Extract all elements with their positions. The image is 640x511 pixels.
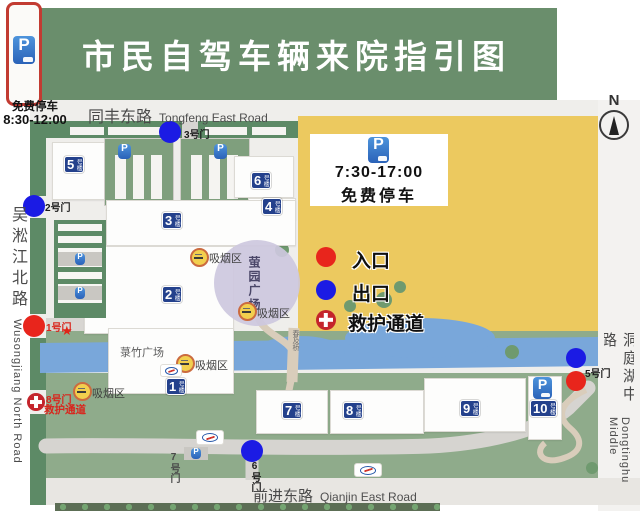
left-road-cn: 吴淞江北路 <box>5 206 29 311</box>
top-road-cn: 同丰东路 <box>88 103 152 127</box>
legend-exit-label: 出口 <box>352 279 390 306</box>
parking-icon: P <box>368 137 389 163</box>
smoking-label: 吸烟区 <box>92 385 125 401</box>
hospital-logo-icon <box>160 364 182 377</box>
gate7-label: 7号门 <box>166 452 181 483</box>
gate5-exit-dot <box>566 348 586 368</box>
parking-icon: P <box>214 144 227 159</box>
car-glyph <box>23 57 33 62</box>
smoking-icon <box>190 248 209 267</box>
gate2-label: 2号门 <box>45 199 71 214</box>
title-banner: 市民自驾车辆来院指引图 <box>36 8 557 100</box>
building-label-6: 6号楼 <box>251 172 271 189</box>
surface-parking-rows <box>54 220 106 318</box>
car-glyph <box>378 156 387 161</box>
building-label-8: 8号楼 <box>343 402 363 419</box>
building-label-2: 2号楼 <box>162 286 182 303</box>
smoking-label: 吸烟区 <box>195 357 228 373</box>
smoking-label: 吸烟区 <box>209 250 242 266</box>
parking-hours: 7:30-17:00 <box>310 164 448 182</box>
gate5-entrance-dot <box>566 371 586 391</box>
legend-entrance-label: 入口 <box>352 246 390 273</box>
gate8-sub-label: 救护通道 <box>44 402 86 417</box>
north-compass-icon: N <box>598 92 630 140</box>
parking-row-p: P <box>58 286 102 300</box>
legend-ambulance-label: 救护通道 <box>348 309 424 336</box>
top-road-en: Tongfeng East Road <box>159 111 268 125</box>
bottom-road-en: Qianjin East Road <box>320 490 417 504</box>
legend-exit-dot <box>316 280 336 300</box>
bamboo-plaza-label: 菉竹广场 <box>120 344 164 360</box>
parking-row-p: P <box>58 252 102 266</box>
parking-free-label: 免费停车 <box>310 182 448 206</box>
hospital-guide-map: 市民自驾车辆来院指引图 P 免费停车 8:30-12:00 P P P <box>0 0 640 511</box>
car-glyph <box>541 393 550 397</box>
star-icon: ★ <box>61 324 73 337</box>
hospital-logo-icon <box>196 430 224 445</box>
ward-block-west <box>104 138 174 206</box>
gate3-label: 3号门 <box>184 126 210 141</box>
smoking-icon <box>73 382 92 401</box>
right-road-cn: 洞庭湖中路 <box>604 332 634 409</box>
building-label-3: 3号楼 <box>162 212 182 229</box>
parking-icon: P <box>13 36 35 64</box>
left-road-en: Wusongjiang North Road <box>11 319 23 464</box>
building-label-5: 5号楼 <box>64 156 84 173</box>
top-road-label: 同丰东路 Tongfeng East Road <box>88 103 268 127</box>
gate6-exit-dot <box>241 440 263 462</box>
parking-icon: P <box>533 377 552 399</box>
pond-small <box>255 336 345 368</box>
parking-icon: P <box>118 144 131 159</box>
building-label-1: 1号楼 <box>166 378 186 395</box>
free-parking-frame: P <box>6 2 42 106</box>
parking-hours-card: P 7:30-17:00 免费停车 <box>310 134 448 206</box>
building-label-9: 9号楼 <box>460 400 480 417</box>
building-label-7: 7号楼 <box>282 402 302 419</box>
right-road-label: 洞庭湖中路 Dongtinghu Middle <box>604 332 634 511</box>
free-parking-morning: 免费停车 8:30-12:00 <box>0 101 70 127</box>
legend-entrance-dot <box>316 247 336 267</box>
hospital-logo-icon <box>354 463 382 477</box>
bridge-label: 春及桥 <box>290 330 300 351</box>
bottom-road-cn: 前进东路 <box>253 485 313 506</box>
legend-ambulance-icon <box>316 310 336 330</box>
left-road-label: 吴淞江北路 Wusongjiang North Road <box>4 206 30 464</box>
building-label-4: 4号楼 <box>262 198 282 215</box>
bus-stop-bar: P <box>184 447 208 460</box>
smoking-icon <box>238 302 257 321</box>
north-letter: N <box>598 92 630 109</box>
smoking-label: 吸烟区 <box>257 305 290 321</box>
page-title: 市民自驾车辆来院指引图 <box>82 30 511 78</box>
bottom-road-label: 前进东路 Qianjin East Road <box>253 485 417 506</box>
building-label-10: 10号楼 <box>530 400 557 417</box>
right-road-en: Dongtinghu Middle <box>607 417 631 511</box>
